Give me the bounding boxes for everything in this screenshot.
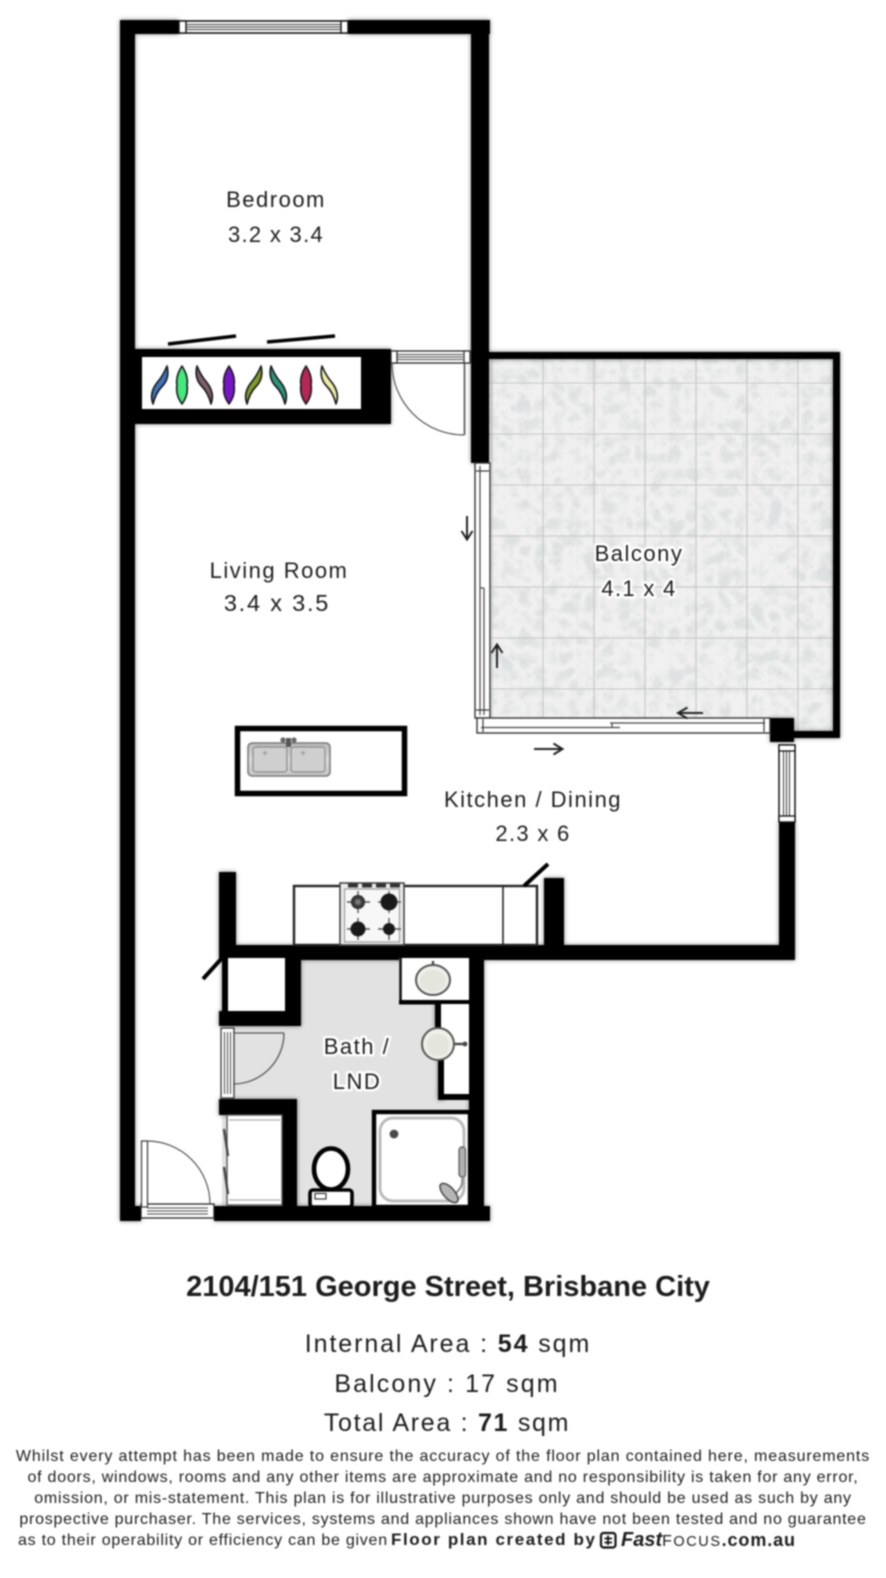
svg-text:Living Room: Living Room	[210, 558, 349, 583]
svg-text:Balcony: Balcony	[595, 541, 684, 566]
svg-text:FastFOCUS.com.au: FastFOCUS.com.au	[621, 1529, 796, 1551]
svg-text:Bath /: Bath /	[324, 1034, 390, 1059]
svg-text:omission, or mis-statement. Th: omission, or mis-statement. This plan is…	[34, 1490, 851, 1507]
svg-text:2104/151 George Street, Brisba: 2104/151 George Street, Brisbane City	[186, 1271, 710, 1303]
svg-text:Whilst every attempt has been: Whilst every attempt has been made to en…	[16, 1448, 870, 1465]
svg-text:Internal Area : 54 sqm: Internal Area : 54 sqm	[305, 1330, 591, 1358]
svg-text:3.4 x 3.5: 3.4 x 3.5	[224, 590, 330, 616]
svg-text:Total Area : 71 sqm: Total Area : 71 sqm	[324, 1409, 570, 1437]
svg-text:Floor plan created by: Floor plan created by	[391, 1530, 597, 1549]
svg-text:Kitchen / Dining: Kitchen / Dining	[444, 787, 622, 812]
svg-text:2.3 x 6: 2.3 x 6	[495, 821, 570, 846]
svg-text:of doors, windows, rooms and a: of doors, windows, rooms and any other i…	[28, 1469, 859, 1486]
svg-text:prospective purchaser. The ser: prospective purchaser. The services, sys…	[19, 1511, 866, 1528]
svg-text:as to their operability or eff: as to their operability or efficiency ca…	[18, 1532, 388, 1549]
svg-text:3.2 x 3.4: 3.2 x 3.4	[228, 222, 324, 247]
svg-text:Balcony : 17 sqm: Balcony : 17 sqm	[334, 1370, 559, 1398]
svg-text:LND: LND	[333, 1069, 382, 1094]
svg-text:Bedroom: Bedroom	[226, 187, 326, 212]
svg-text:4.1 x 4: 4.1 x 4	[601, 576, 676, 601]
